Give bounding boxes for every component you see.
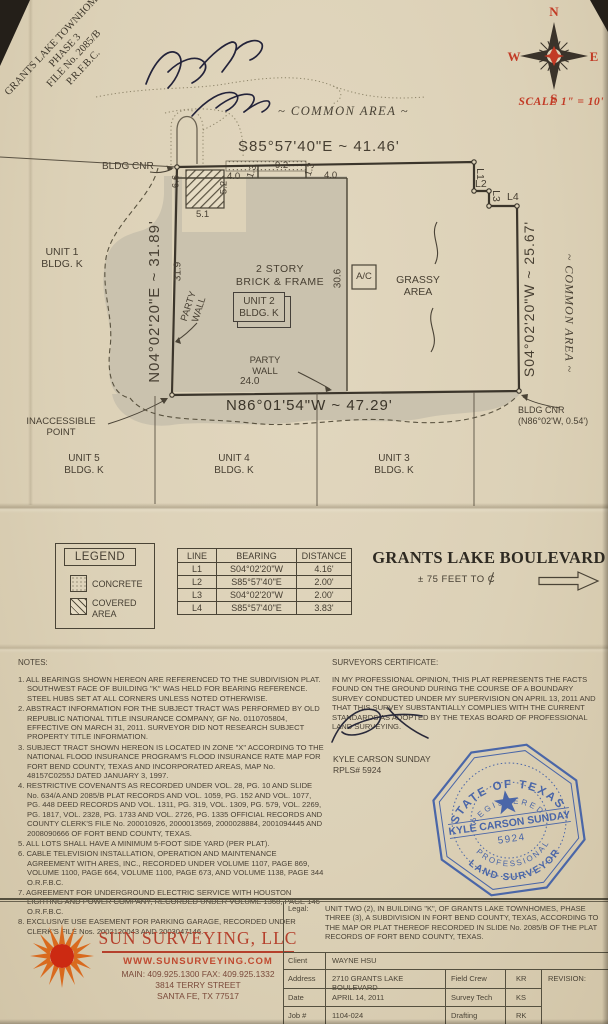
common-area-top-label: ~ COMMON AREA ~	[278, 104, 409, 119]
note-item: 1. ALL BEARINGS SHOWN HEREON ARE REFEREN…	[18, 675, 324, 703]
handwritten-signature-1	[146, 41, 262, 88]
survey-plat-page: N S E W GRANTS LAKE TOWNHOMES PHASE 3 FI…	[0, 0, 608, 1024]
legend-concrete-label: CONCRETE	[92, 579, 143, 589]
street-direction-arrow	[538, 570, 600, 592]
title-block-table: Legal: UNIT TWO (2), IN BUILDING "K", OF…	[283, 902, 608, 1024]
compass-w: W	[508, 49, 521, 64]
firm-rule	[102, 951, 294, 953]
line-row-l1-distance: 4.16'	[296, 563, 351, 576]
concrete-swatch	[70, 575, 87, 592]
date-label-cell: Date	[283, 988, 325, 1006]
photo-edge-bottom	[0, 1019, 608, 1024]
sun-logo	[16, 922, 108, 994]
line-row-l2-distance: 2.00'	[296, 576, 351, 589]
legend-title: LEGEND	[64, 548, 136, 566]
dim-24-0: 24.0	[240, 376, 259, 387]
walkway-keyhole	[177, 117, 197, 166]
unit5-label: UNIT 5BLDG. K	[48, 453, 120, 476]
surveyor-signature	[328, 700, 438, 748]
note-item: 5. ALL LOTS SHALL HAVE A MINIMUM 5-FOOT …	[18, 839, 324, 848]
firm-website[interactable]: WWW.SUNSURVEYING.COM	[98, 956, 298, 967]
legend-covered-label: COVEREDAREA	[92, 598, 137, 619]
bldg-cnr-bottom-label: BLDG CNR(N86°02'W, 0.54')	[518, 405, 588, 426]
client-label-cell: Client	[283, 952, 325, 969]
compass-rose: N S E W	[508, 4, 599, 106]
firm-block: SUN SURVEYING, LLC WWW.SUNSURVEYING.COM …	[98, 928, 298, 1001]
surveyor-license: RPLS# 5924	[333, 765, 381, 775]
line-row-l3-id: L3	[178, 589, 216, 602]
dim-30-6: 30.6	[333, 264, 344, 294]
ac-label: A/C	[352, 271, 376, 282]
compass-e: E	[590, 49, 599, 64]
building-description: 2 STORYBRICK & FRAME	[222, 263, 338, 288]
revision-cell: REVISION:	[541, 969, 608, 1024]
dim-5-1: 5.1	[196, 209, 209, 220]
legal-label-cell: Legal:	[283, 902, 323, 952]
street-name: GRANTS LAKE BOULEVARD	[370, 548, 608, 568]
bearing-east-line: S04°02'20"W ~ 25.67'	[521, 209, 537, 389]
bldg-cnr-top-label: BLDG CNR	[102, 161, 154, 172]
line-row-l2-bearing: S85°57'40"E	[216, 576, 296, 589]
line-row-l2-id: L2	[178, 576, 216, 589]
line-table-header-bearing: BEARING	[216, 549, 296, 563]
party-wall-label-bottom: PARTYWALL	[243, 355, 287, 377]
firm-address-1: 3814 TERRY STREET	[98, 980, 298, 990]
line-table-header-line: LINE	[178, 549, 216, 563]
common-area-right-label: ~ COMMON AREA ~	[562, 249, 577, 379]
line-table: LINE BEARING DISTANCE L1 S04°02'20"W 4.1…	[177, 548, 352, 615]
line-row-l1-bearing: S04°02'20"W	[216, 563, 296, 576]
unit3-label: UNIT 3BLDG. K	[358, 453, 430, 476]
l2-label: L2	[475, 178, 487, 190]
vertical-crease	[28, 0, 33, 505]
notes-section: NOTES: 1. ALL BEARINGS SHOWN HEREON ARE …	[18, 658, 324, 936]
dim-9-2: 9.2	[275, 160, 288, 171]
survey-tech-value-cell: KS	[505, 988, 541, 1006]
client-value-cell: WAYNE HSU	[325, 952, 608, 969]
line-row-l4-id: L4	[178, 602, 216, 614]
address-label-cell: Address	[283, 969, 325, 988]
grassy-area-label: GRASSYAREA	[388, 274, 448, 298]
certificate-heading: SURVEYORS CERTIFICATE:	[332, 658, 604, 667]
surveyor-seal: STATE OF TEXAS REGISTERED KYLE CARSON SU…	[414, 729, 605, 911]
dim-4-0b: 4.0	[324, 170, 337, 181]
unit4-label: UNIT 4BLDG. K	[198, 453, 270, 476]
field-crew-value-cell: KR	[505, 969, 541, 988]
unit2-label-box: UNIT 2BLDG. K	[233, 292, 285, 322]
footer-divider	[0, 898, 608, 900]
note-item: 4. RESTRICTIVE COVENANTS AS RECORDED UND…	[18, 781, 324, 837]
line-row-l4-distance: 3.83'	[296, 602, 351, 614]
handwritten-signature-2	[192, 92, 270, 116]
l3-label: L3	[490, 184, 502, 208]
note-item: 7. AGREEMENT FOR UNDERGROUND ELECTRIC SE…	[18, 888, 324, 916]
bearing-west-line: N04°02'20"E ~ 31.89'	[146, 209, 163, 394]
date-value-cell: APRIL 14, 2011	[325, 988, 445, 1006]
centerline-symbol: C	[488, 574, 496, 584]
legal-text-cell: UNIT TWO (2), IN BUILDING "K", OF GRANTS…	[323, 902, 608, 952]
survey-tech-label-cell: Survey Tech	[445, 988, 505, 1006]
line-table-header-distance: DISTANCE	[296, 549, 351, 563]
compass-n: N	[549, 4, 559, 19]
line-row-l4-bearing: S85°57'40"E	[216, 602, 296, 614]
legend-box: LEGEND CONCRETE COVEREDAREA	[55, 543, 155, 629]
dim-31-9: 31.9	[173, 257, 184, 287]
fold-crease-2	[0, 644, 608, 653]
dim-5-2: 5.2	[219, 175, 230, 201]
firm-phone: MAIN: 409.925.1300 FAX: 409.925.1332	[98, 969, 298, 979]
firm-name: SUN SURVEYING, LLC	[98, 928, 298, 949]
field-crew-label-cell: Field Crew	[445, 969, 505, 988]
seal-number-text: 5924	[497, 832, 527, 847]
note-item: 2. ABSTRACT INFORMATION FOR THE SUBJECT …	[18, 704, 324, 742]
street-distance-note: ± 75 FEET TO C	[418, 574, 496, 585]
photo-edge-right	[602, 0, 608, 1024]
note-item: 3. SUBJECT TRACT SHOWN HEREON IS LOCATED…	[18, 743, 324, 781]
address-value-cell: 2710 GRANTS LAKE BOULEVARD	[325, 969, 445, 988]
line-row-l3-distance: 2.00'	[296, 589, 351, 602]
unit1-label: UNIT 1BLDG. K	[30, 246, 94, 270]
bearing-north-line: S85°57'40"E ~ 41.46'	[238, 138, 400, 155]
firm-address-2: SANTA FE, TX 77517	[98, 991, 298, 1001]
line-row-l1-id: L1	[178, 563, 216, 576]
note-item: 6. CABLE TELEVISION INSTALLATION, OPERAT…	[18, 849, 324, 887]
line-row-l3-bearing: S04°02'20"W	[216, 589, 296, 602]
covered-area-swatch	[70, 598, 87, 615]
l4-label: L4	[507, 191, 519, 203]
notes-heading: NOTES:	[18, 658, 324, 667]
scale-note: SCALE 1" = 10'	[498, 96, 604, 108]
dim-6-6: 6.6	[171, 168, 182, 196]
bearing-south-line: N86°01'54"W ~ 47.29'	[226, 397, 393, 414]
